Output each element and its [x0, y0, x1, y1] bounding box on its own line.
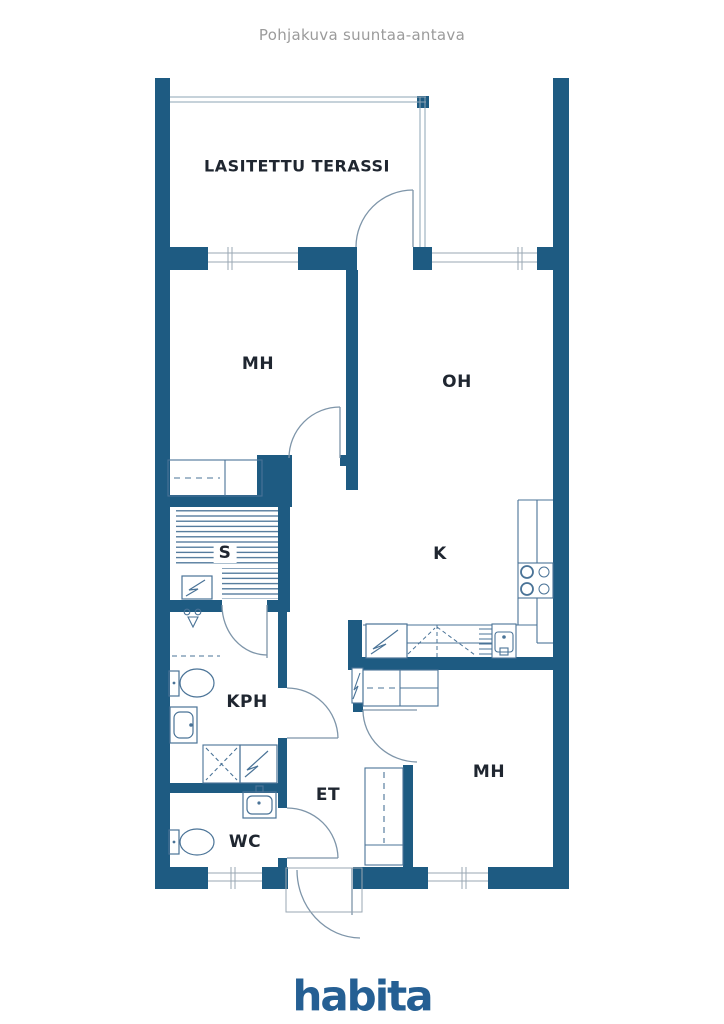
washbasin-kph — [170, 707, 197, 743]
toilet-kph — [169, 669, 214, 697]
dish-rack — [479, 629, 492, 654]
shower-icon — [172, 609, 220, 656]
window-livingroom — [432, 247, 537, 270]
dishwasher-reservation — [408, 625, 475, 657]
sauna-bench-lower — [222, 568, 278, 599]
window-bedroom1 — [208, 247, 298, 270]
door-bathroom — [287, 688, 338, 738]
electrical-panel — [352, 668, 363, 703]
door-terrace — [356, 190, 413, 247]
room-label-wc: WC — [229, 832, 261, 852]
room-label-bedroom1: MH — [242, 354, 274, 374]
room-label-kitchen: K — [433, 544, 447, 564]
door-bedroom2 — [363, 710, 417, 762]
wardrobe-bedroom1 — [168, 460, 262, 496]
stove — [518, 563, 553, 598]
room-label-terrace: LASITETTU TERASSI — [204, 157, 390, 176]
door-entry — [297, 868, 360, 938]
walls — [155, 78, 569, 889]
closet-hallway — [365, 768, 403, 865]
floorplan-page: Pohjakuva suuntaa-antava — [0, 0, 724, 1024]
room-label-bedroom2: MH — [473, 762, 505, 782]
washing-machine — [240, 745, 277, 783]
kitchen-sink — [492, 624, 516, 658]
door-wc — [287, 808, 338, 858]
floorplan-drawing — [0, 0, 724, 1024]
habita-logo: habita — [292, 972, 431, 1021]
room-label-sauna: S — [214, 543, 237, 563]
washer-reservation — [203, 745, 240, 783]
sauna-heater — [182, 576, 212, 599]
door-sauna — [222, 605, 267, 658]
room-label-bathroom: KPH — [226, 692, 267, 712]
wardrobe-bedroom2 — [363, 670, 438, 706]
door-bedroom1 — [289, 407, 340, 458]
toilet-wc — [169, 829, 214, 855]
window-wc — [208, 867, 262, 889]
refrigerator — [366, 624, 407, 658]
room-label-hallway: ET — [316, 785, 340, 805]
room-label-livingroom: OH — [442, 372, 472, 392]
window-bedroom2 — [428, 867, 488, 889]
